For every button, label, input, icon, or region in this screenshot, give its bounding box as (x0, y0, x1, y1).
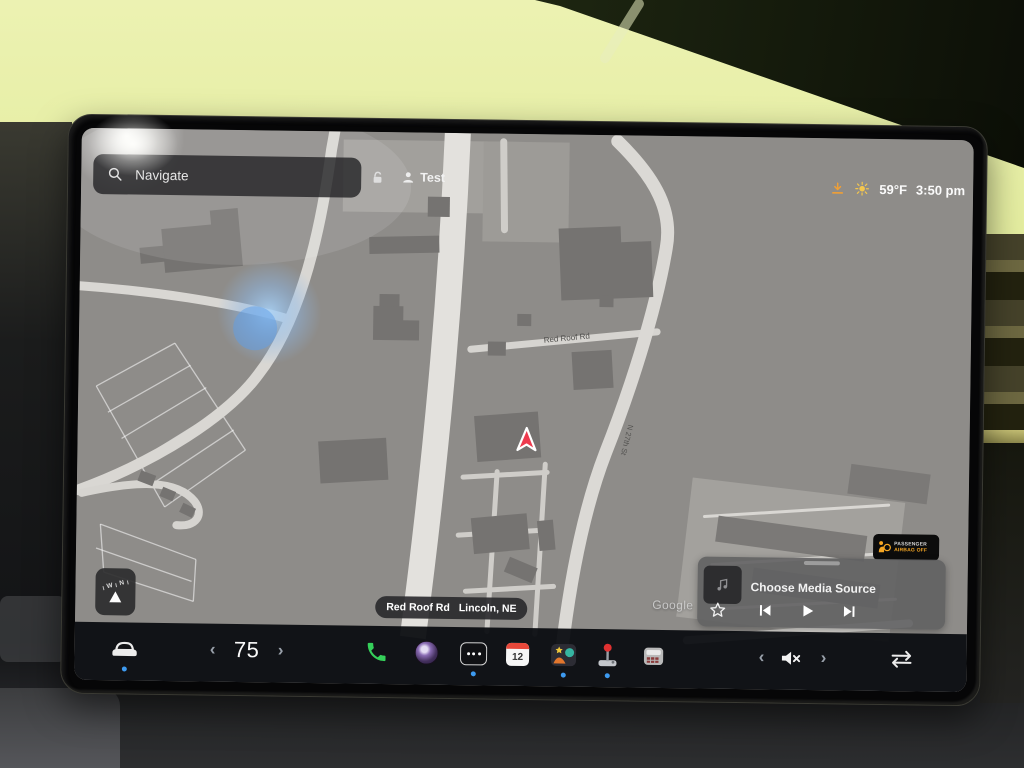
camera-app-button[interactable] (414, 626, 439, 678)
compass-north-label: N (119, 579, 125, 587)
current-location-pill: Red Roof Rd Lincoln, NE (375, 596, 528, 620)
compass-arrow-icon (109, 591, 121, 602)
status-cluster: 59°F 3:50 pm (830, 180, 965, 198)
favorite-button[interactable] (705, 599, 729, 621)
music-note-icon (714, 577, 730, 593)
active-dot-arcade (605, 673, 610, 678)
display: Red Roof Rd N 27th St (74, 128, 974, 692)
compass-west-label: W (106, 582, 114, 590)
previous-track-button[interactable] (753, 599, 777, 621)
temp-down-button[interactable]: ‹ (209, 624, 215, 676)
dashboard-trim-highlight (980, 430, 1024, 443)
compass-button[interactable]: W N (95, 568, 136, 616)
google-attribution: Google (652, 598, 693, 613)
toybox-app-button[interactable] (642, 630, 666, 682)
calendar-app-button[interactable]: 12 (506, 628, 530, 680)
current-street: Red Roof Rd (386, 601, 450, 614)
profile-icon (401, 170, 415, 184)
driver-profile-name: Test (420, 171, 445, 185)
driver-profile-button[interactable]: Test (401, 170, 445, 185)
sun-icon (854, 181, 870, 197)
active-dot-theater (561, 673, 566, 678)
software-update-icon[interactable] (830, 181, 845, 196)
previous-track-icon (756, 601, 774, 619)
navigate-search-bar[interactable]: Navigate (93, 154, 362, 198)
climate-temperature[interactable]: 75 (234, 624, 260, 676)
lock-button[interactable] (370, 170, 385, 190)
next-track-icon (840, 602, 858, 620)
car-icon (109, 636, 139, 660)
compass-ribbon: W N (102, 578, 129, 591)
calendar-day: 12 (506, 649, 529, 666)
cabin-photo: Red Roof Rd N 27th St (0, 0, 1024, 768)
navigate-search-label: Navigate (135, 167, 189, 183)
play-icon (798, 602, 816, 620)
phone-icon (364, 640, 388, 664)
passenger-airbag-badge: PASSENGER AIRBAG OFF (873, 534, 939, 561)
mute-button[interactable] (779, 632, 803, 684)
unlock-icon (370, 170, 385, 185)
theater-icon (550, 643, 576, 666)
launcher-bar: ‹ 75 › 12 (74, 622, 967, 692)
next-track-button[interactable] (837, 600, 861, 622)
dashboard-wood-trim (980, 234, 1024, 440)
active-dot-vehicle (122, 666, 127, 671)
screen-swap-button[interactable] (888, 633, 915, 685)
airbag-label-line2: AIRBAG OFF (894, 547, 927, 553)
air-vent (0, 596, 66, 662)
phone-app-button[interactable] (364, 626, 389, 678)
more-apps-icon (460, 642, 487, 665)
airbag-warning-icon (877, 540, 891, 554)
swap-arrows-icon (888, 648, 914, 670)
dashboard-corner (0, 688, 120, 768)
joystick-icon (595, 642, 619, 668)
muted-speaker-icon (779, 646, 802, 669)
temp-up-button[interactable]: › (277, 625, 283, 677)
media-mini-player[interactable]: Choose Media Source (697, 556, 946, 629)
media-source-prompt[interactable]: Choose Media Source (750, 580, 876, 596)
dashboard-right (980, 443, 1024, 703)
outside-temperature[interactable]: 59°F (879, 181, 907, 196)
clock: 3:50 pm (916, 182, 965, 198)
volume-up-button[interactable]: › (820, 632, 826, 684)
media-drag-handle[interactable] (804, 561, 840, 565)
current-city: Lincoln, NE (459, 602, 517, 615)
play-button[interactable] (795, 600, 819, 622)
star-icon (708, 600, 727, 619)
radio-icon (642, 644, 665, 667)
active-dot-apps (471, 671, 476, 676)
camera-lens-icon (414, 640, 438, 664)
search-icon (107, 166, 123, 182)
tesla-touchscreen: Red Roof Rd N 27th St (60, 114, 988, 707)
volume-down-button[interactable]: ‹ (758, 631, 764, 683)
calendar-icon: 12 (506, 642, 529, 665)
